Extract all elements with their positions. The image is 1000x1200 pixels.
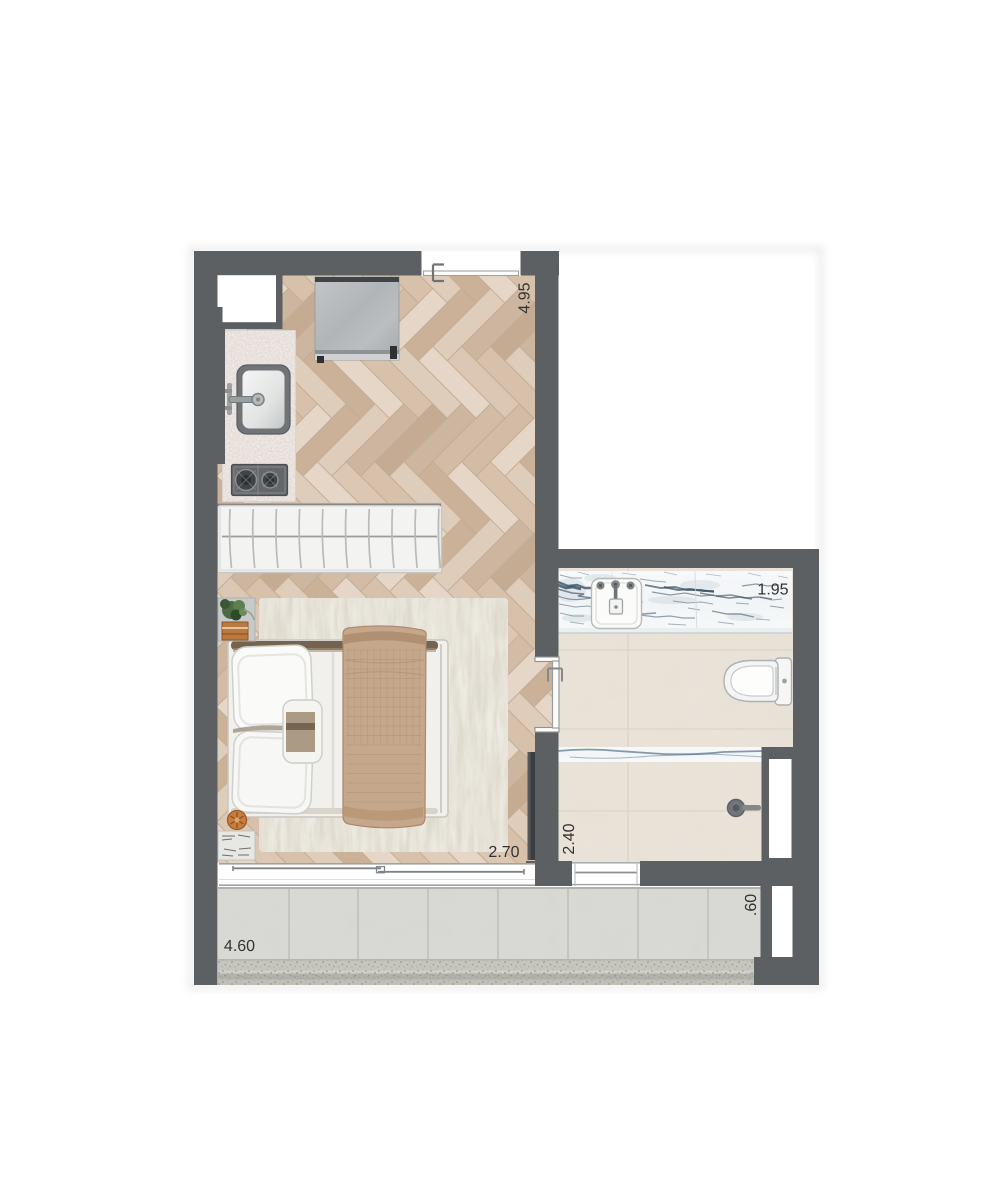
svg-text:4.95: 4.95 — [517, 282, 534, 313]
svg-text:4.60: 4.60 — [224, 938, 255, 955]
svg-text:2.40: 2.40 — [561, 823, 578, 854]
svg-text:.60: .60 — [743, 894, 760, 916]
svg-text:2.70: 2.70 — [488, 844, 519, 861]
svg-text:1.95: 1.95 — [757, 582, 788, 599]
